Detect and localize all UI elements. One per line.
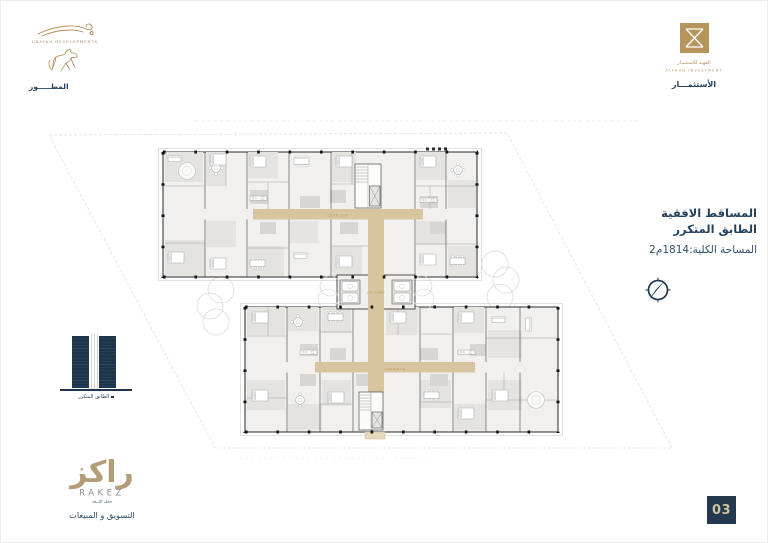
- ubayah-calligraphy-icon: [38, 24, 93, 36]
- investor-company-name-en: ALFAHD INVESTMENT: [665, 69, 722, 73]
- tower-right: [99, 336, 116, 388]
- corridor-label: CORRIDOR: [384, 367, 405, 371]
- tower-gap-line: [97, 334, 98, 390]
- north-compass-icon: [642, 275, 674, 307]
- building-elevation-icon: الطابق المتكرر: [60, 332, 138, 404]
- developer-company-name: UBAYAH DEVELOPMENTS: [32, 39, 98, 44]
- stair-core-top: [355, 164, 381, 208]
- tower-gap-line: [94, 334, 95, 390]
- tower-left: [72, 336, 89, 388]
- corridor-label: CORRIDOR: [327, 213, 348, 217]
- page-number-badge: 03: [707, 496, 736, 524]
- elevation-caption: الطابق المتكرر: [78, 394, 109, 400]
- investor-logo: الفهـد للاستثمـار ALFAHD INVESTMENT الأس…: [660, 20, 728, 92]
- page-number: 03: [712, 503, 731, 518]
- alfahd-emblem-icon: [680, 23, 709, 53]
- horse-icon: [49, 50, 77, 71]
- developer-logo: UBAYAH DEVELOPMENTS المطـــــور: [28, 20, 140, 98]
- rakez-brand-en: RAKEZ: [79, 489, 125, 499]
- developer-role-label: المطـــــور: [28, 82, 69, 91]
- plan-title: المساقط الافقية: [577, 206, 757, 221]
- investor-role-label: الأستثمـــار: [671, 79, 717, 89]
- investor-company-name-ar: الفهـد للاستثمـار: [676, 60, 710, 66]
- plan-subtitle: الطابق المتكرر: [577, 222, 757, 237]
- ground-line: [60, 389, 132, 391]
- lift-lobby-label: LIFT LOBBY: [367, 291, 385, 295]
- plan-area: المساحة الكلية:1814م2: [577, 244, 757, 256]
- legend-square-icon: [111, 396, 114, 399]
- elevation-caption-row: الطابق المتكرر: [56, 394, 136, 400]
- stair-core-bottom: [359, 392, 383, 430]
- rakez-logo: راكز RAKEZ محل الثــقة التسويق و المبيعا…: [58, 448, 148, 524]
- sales-dept-label: التسويق و المبيعات: [69, 510, 135, 520]
- rakez-tagline: محل الثــقة: [92, 499, 112, 504]
- plan-info-block: المساقط الافقية الطابق المتكرر المساحة ا…: [577, 206, 757, 256]
- tower-gap-line: [91, 334, 92, 390]
- rakez-brand-ar: راكز: [68, 455, 134, 490]
